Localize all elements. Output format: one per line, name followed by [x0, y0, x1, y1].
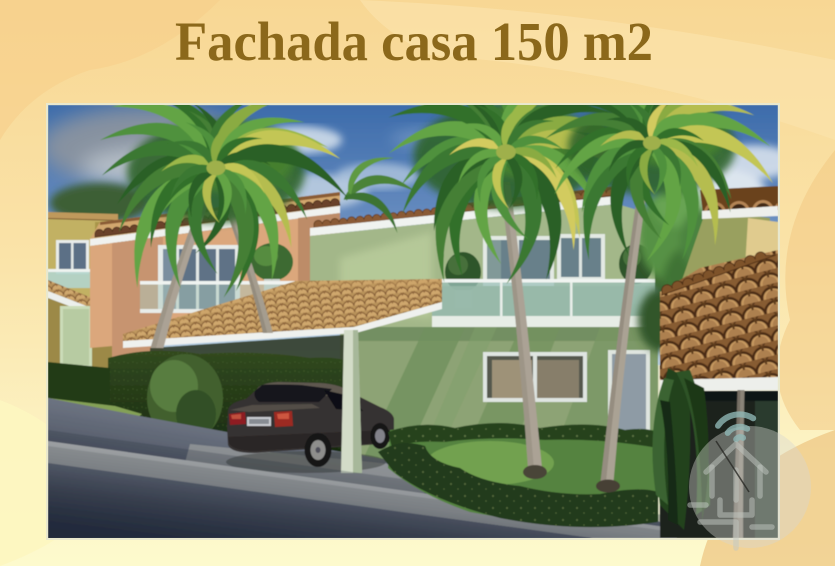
svg-text:Fachada casa 150 m2: Fachada casa 150 m2: [175, 11, 653, 72]
